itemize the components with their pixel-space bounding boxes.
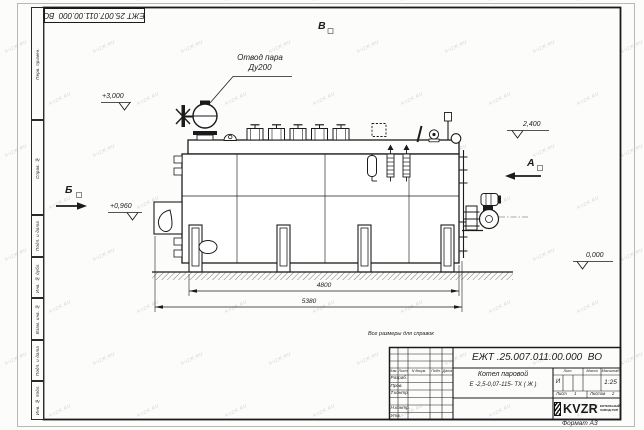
tb-row-utv: Утв. (391, 414, 401, 419)
product-name-line2: Е -2,5-0,07-115- ТХ ( Ж ) (455, 382, 551, 388)
company-logo: KVZR КОТЕЛЬНЫЙ ЗАВОД РЭП (554, 399, 620, 419)
margin-field: Взам. инв. № (31, 298, 44, 340)
roof-hatches (247, 125, 349, 140)
margin-field: Инв. № дубл. (31, 257, 44, 298)
elevation-roof: +3,000 (102, 93, 124, 100)
tb-scale-value: 1:25 (601, 380, 620, 387)
callout-steam-outlet-line1: Отвод пара (224, 54, 296, 62)
tb-lit-label: Лит. (553, 370, 583, 374)
rear-flanged-pipe (460, 150, 468, 258)
tb-scale-label: Масштаб (601, 370, 620, 374)
left-margin-fields: Перв. примен. Справ. № Подп. и дата Инв.… (31, 7, 44, 420)
drawing-canvas (0, 0, 644, 430)
format-label: Формат А3 (562, 421, 598, 428)
margin-field: Справ. № (31, 120, 44, 215)
tb-sheets-value: 2 (612, 392, 614, 396)
corner-stamp-number: ЕЖТ 25.007.011.00.000 ВО (43, 11, 145, 20)
callout-leader (210, 77, 292, 104)
tb-row-razrab: Разраб. (391, 376, 408, 381)
tb-col-docnum: N докум. (408, 370, 430, 374)
steam-outlet-valve (176, 101, 236, 141)
product-name-line1: Котел паровой (455, 371, 551, 378)
view-label-b: Б (65, 185, 72, 196)
tb-row-nkontr: Н.контр. (391, 406, 410, 411)
margin-field: Перв. примен. (31, 7, 44, 120)
corner-stamp: ЕЖТ 25.007.011.00.000 ВО (44, 8, 145, 24)
drum-top-fittings (372, 113, 461, 144)
manhole (199, 241, 217, 254)
margin-field: Инв. № подл. (31, 381, 44, 420)
dimension-5380: 5380 (289, 299, 329, 306)
callout-steam-outlet-line2: Ду200 (224, 64, 296, 72)
elevation-ground: 0,000 (586, 252, 604, 259)
margin-field: Подп. и дата (31, 215, 44, 257)
tb-row-prov: Пров. (391, 384, 403, 389)
tb-col-izm: Изм. (389, 370, 398, 374)
tb-lit-value: И (553, 379, 563, 385)
tb-sheets-label: Листов (590, 392, 605, 396)
tb-col-data: Дата (442, 370, 453, 374)
tb-mass-label: Масса (583, 370, 601, 374)
logo-text: KVZR (563, 403, 598, 416)
view-label-v: В (318, 21, 326, 32)
spring-coil-icon (554, 402, 561, 416)
elevation-burner: +0,960 (110, 203, 132, 210)
tb-sheet-label: Лист (556, 392, 567, 396)
dimension-4800: 4800 (304, 283, 344, 290)
title-doc-number: ЕЖТ .25.007.011.00.000 ВО (455, 353, 619, 363)
logo-subtitle: КОТЕЛЬНЫЙ ЗАВОД РЭП (600, 405, 620, 413)
drawing-sheet: KVZR.RUKVZR.RUKVZR.RUKVZR.RUKVZR.RUKVZR.… (0, 0, 644, 430)
feed-pump (462, 194, 529, 231)
tb-col-list: Лист (398, 370, 408, 374)
elevation-top: 2,400 (523, 121, 541, 128)
reference-note: Все размеры для справок (368, 332, 434, 338)
tb-col-podp: Подп. (430, 370, 442, 374)
tb-sheet-value: 1 (574, 392, 576, 396)
tb-row-tkontr: Т.контр. (391, 391, 410, 396)
burner-box (154, 202, 182, 234)
view-label-a: А (527, 158, 535, 169)
logo-subtitle-line2: ЗАВОД РЭП (600, 409, 620, 413)
margin-field: Подп. и дата (31, 340, 44, 381)
